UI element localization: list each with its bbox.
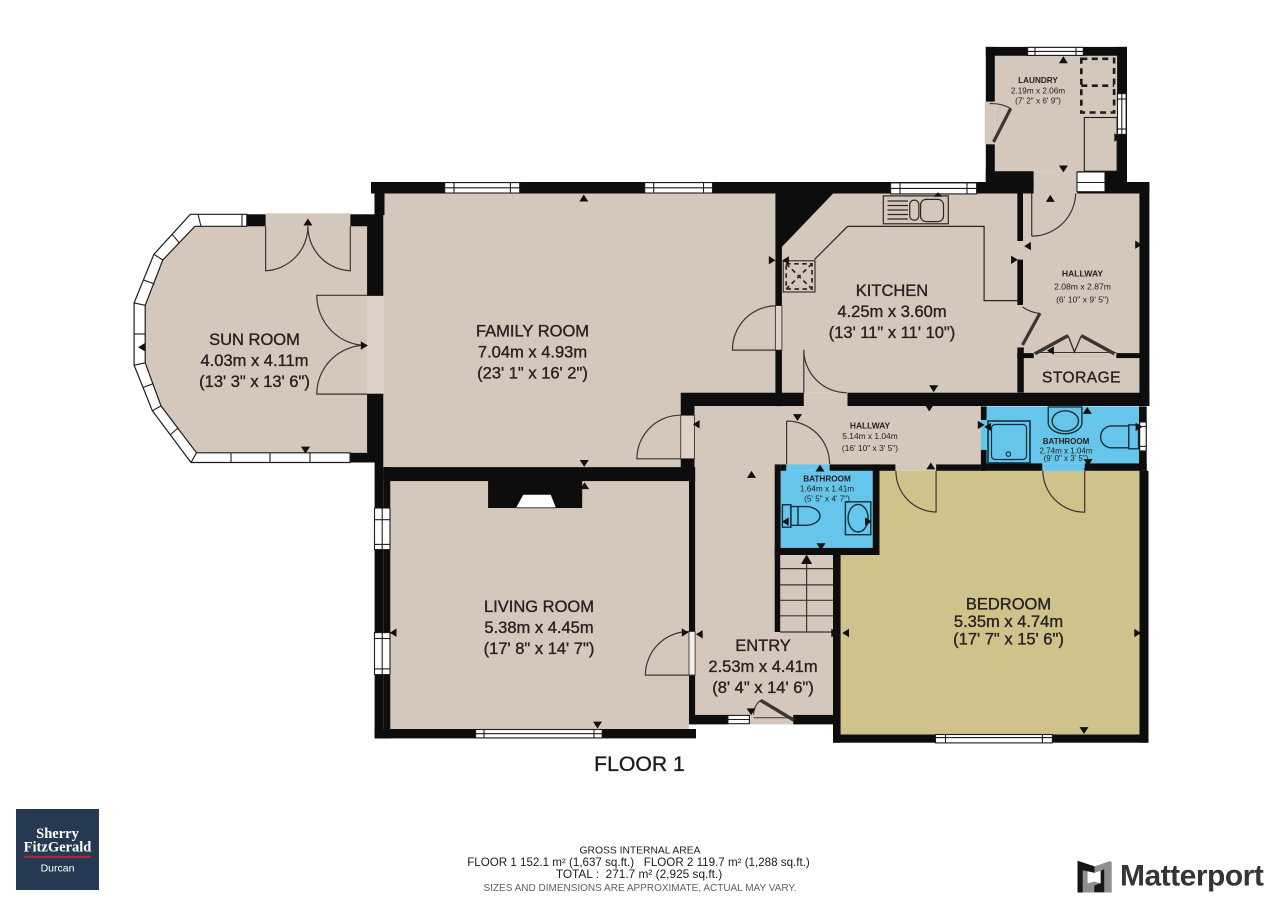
svg-text:4.03m x 4.11m: 4.03m x 4.11m bbox=[201, 352, 309, 370]
svg-text:(17' 8" x 14' 7"): (17' 8" x 14' 7") bbox=[484, 640, 595, 658]
svg-text:(6' 10" x 9' 5"): (6' 10" x 9' 5") bbox=[1056, 294, 1109, 304]
svg-text:FAMILY ROOM: FAMILY ROOM bbox=[476, 323, 589, 341]
svg-text:5.35m x 4.74m: 5.35m x 4.74m bbox=[954, 613, 1063, 631]
svg-text:HALLWAY: HALLWAY bbox=[850, 421, 891, 431]
svg-text:STORAGE: STORAGE bbox=[1042, 370, 1121, 387]
svg-text:Matterport: Matterport bbox=[1120, 860, 1264, 893]
svg-text:(8' 4" x 14' 6"): (8' 4" x 14' 6") bbox=[712, 679, 813, 697]
svg-text:HALLWAY: HALLWAY bbox=[1062, 268, 1103, 278]
svg-text:BEDROOM: BEDROOM bbox=[966, 596, 1051, 614]
svg-text:2.53m x 4.41m: 2.53m x 4.41m bbox=[708, 658, 817, 676]
svg-text:FLOOR 1: FLOOR 1 bbox=[594, 753, 685, 776]
svg-text:(7' 2" x 6' 9"): (7' 2" x 6' 9") bbox=[1015, 97, 1061, 106]
svg-text:Durcan: Durcan bbox=[41, 862, 75, 874]
svg-text:BATHROOM: BATHROOM bbox=[803, 475, 851, 484]
svg-text:GROSS INTERNAL AREA: GROSS INTERNAL AREA bbox=[580, 845, 701, 856]
svg-text:BATHROOM: BATHROOM bbox=[1043, 437, 1090, 446]
svg-text:KITCHEN: KITCHEN bbox=[856, 282, 928, 300]
svg-text:(17' 7" x 15' 6"): (17' 7" x 15' 6") bbox=[953, 631, 1064, 649]
svg-text:SIZES AND DIMENSIONS ARE APPRO: SIZES AND DIMENSIONS ARE APPROXIMATE, AC… bbox=[483, 883, 796, 894]
svg-text:(16' 10" x 3' 5"): (16' 10" x 3' 5") bbox=[842, 443, 898, 453]
svg-text:TOTAL : 271.7 m² (2,925 sq.ft: TOTAL : 271.7 m² (2,925 sq.ft.) bbox=[556, 867, 722, 881]
svg-text:4.25m x 3.60m: 4.25m x 3.60m bbox=[837, 303, 946, 321]
svg-text:(13' 11" x 11' 10"): (13' 11" x 11' 10") bbox=[829, 324, 956, 342]
svg-text:LIVING ROOM: LIVING ROOM bbox=[484, 598, 594, 616]
svg-text:LAUNDRY: LAUNDRY bbox=[1018, 76, 1058, 85]
svg-text:FitzGerald: FitzGerald bbox=[24, 840, 92, 856]
svg-text:ENTRY: ENTRY bbox=[735, 637, 791, 655]
svg-text:(5' 5" x 4' 7"): (5' 5" x 4' 7") bbox=[804, 495, 850, 504]
svg-text:(13' 3" x 13' 6"): (13' 3" x 13' 6") bbox=[199, 373, 310, 391]
svg-text:2.19m x 2.06m: 2.19m x 2.06m bbox=[1011, 87, 1065, 96]
svg-text:7.04m x 4.93m: 7.04m x 4.93m bbox=[478, 344, 587, 362]
svg-text:5.14m x 1.04m: 5.14m x 1.04m bbox=[842, 431, 897, 441]
svg-text:1.64m x 1.41m: 1.64m x 1.41m bbox=[800, 485, 854, 494]
svg-text:2.08m x 2.87m: 2.08m x 2.87m bbox=[1054, 282, 1111, 292]
svg-text:(9' 0" x 3' 5"): (9' 0" x 3' 5") bbox=[1044, 454, 1089, 463]
svg-text:5.38m x 4.45m: 5.38m x 4.45m bbox=[484, 619, 593, 637]
svg-text:SUN ROOM: SUN ROOM bbox=[209, 331, 300, 349]
svg-text:(23' 1" x 16' 2"): (23' 1" x 16' 2") bbox=[477, 365, 588, 383]
